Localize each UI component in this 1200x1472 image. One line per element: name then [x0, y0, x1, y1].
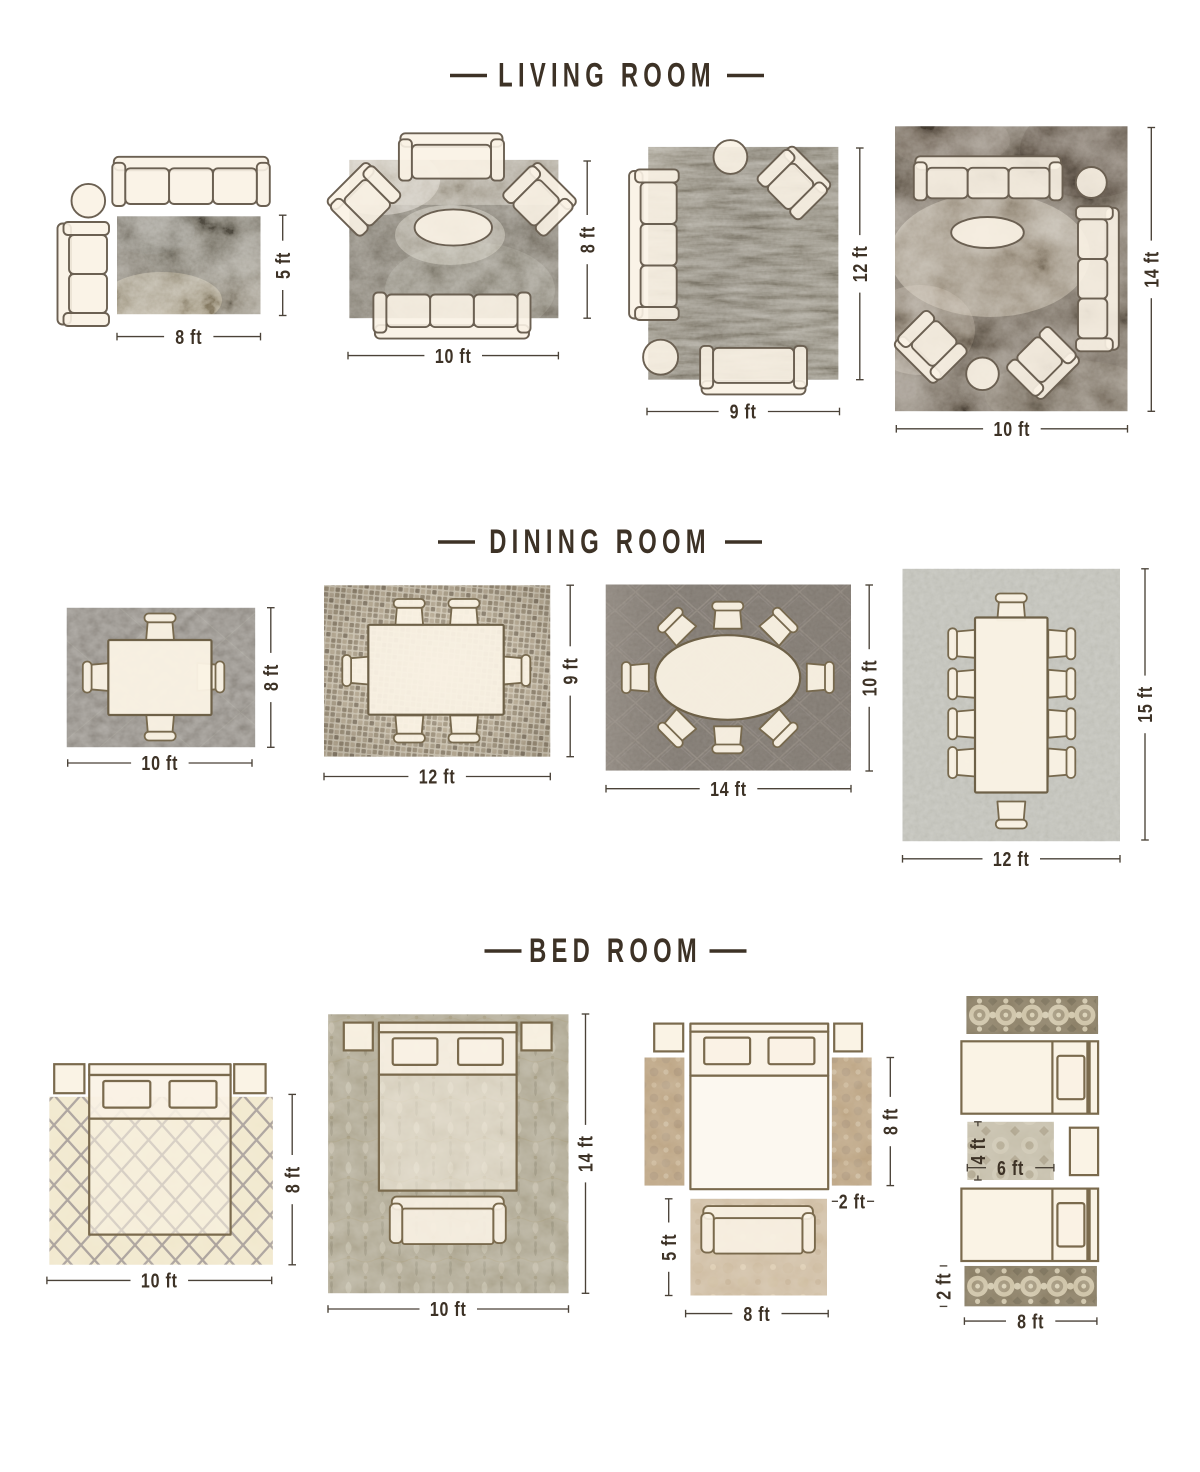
svg-text:10 ft: 10 ft	[857, 660, 880, 697]
svg-text:10 ft: 10 ft	[435, 344, 472, 367]
svg-text:2 ft: 2 ft	[932, 1273, 955, 1300]
svg-text:10 ft: 10 ft	[141, 1269, 178, 1292]
svg-text:9 ft: 9 ft	[730, 400, 757, 423]
svg-text:12 ft: 12 ft	[419, 765, 456, 788]
svg-text:15 ft: 15 ft	[1133, 686, 1156, 723]
svg-text:10 ft: 10 ft	[141, 751, 178, 774]
svg-text:LIVING ROOM: LIVING ROOM	[498, 56, 716, 94]
svg-text:12 ft: 12 ft	[848, 246, 871, 283]
svg-text:8 ft: 8 ft	[1017, 1309, 1044, 1332]
svg-text:14 ft: 14 ft	[574, 1135, 597, 1172]
svg-text:12 ft: 12 ft	[993, 847, 1030, 870]
svg-text:10 ft: 10 ft	[994, 417, 1031, 440]
svg-text:8 ft: 8 ft	[879, 1108, 902, 1135]
svg-text:8 ft: 8 ft	[280, 1166, 303, 1193]
svg-text:4 ft: 4 ft	[966, 1137, 989, 1164]
svg-text:8 ft: 8 ft	[175, 325, 202, 348]
svg-text:5 ft: 5 ft	[271, 252, 294, 279]
svg-text:BED ROOM: BED ROOM	[529, 932, 702, 970]
svg-text:14 ft: 14 ft	[710, 777, 747, 800]
svg-text:6 ft: 6 ft	[997, 1156, 1024, 1179]
svg-text:8 ft: 8 ft	[575, 226, 598, 253]
svg-text:2 ft: 2 ft	[839, 1190, 866, 1213]
svg-text:8 ft: 8 ft	[743, 1302, 770, 1325]
svg-text:14 ft: 14 ft	[1140, 251, 1163, 288]
svg-text:5 ft: 5 ft	[657, 1234, 680, 1261]
svg-text:DINING ROOM: DINING ROOM	[489, 523, 711, 561]
svg-text:9 ft: 9 ft	[558, 657, 581, 684]
svg-text:10 ft: 10 ft	[430, 1297, 467, 1320]
svg-text:8 ft: 8 ft	[259, 664, 282, 691]
